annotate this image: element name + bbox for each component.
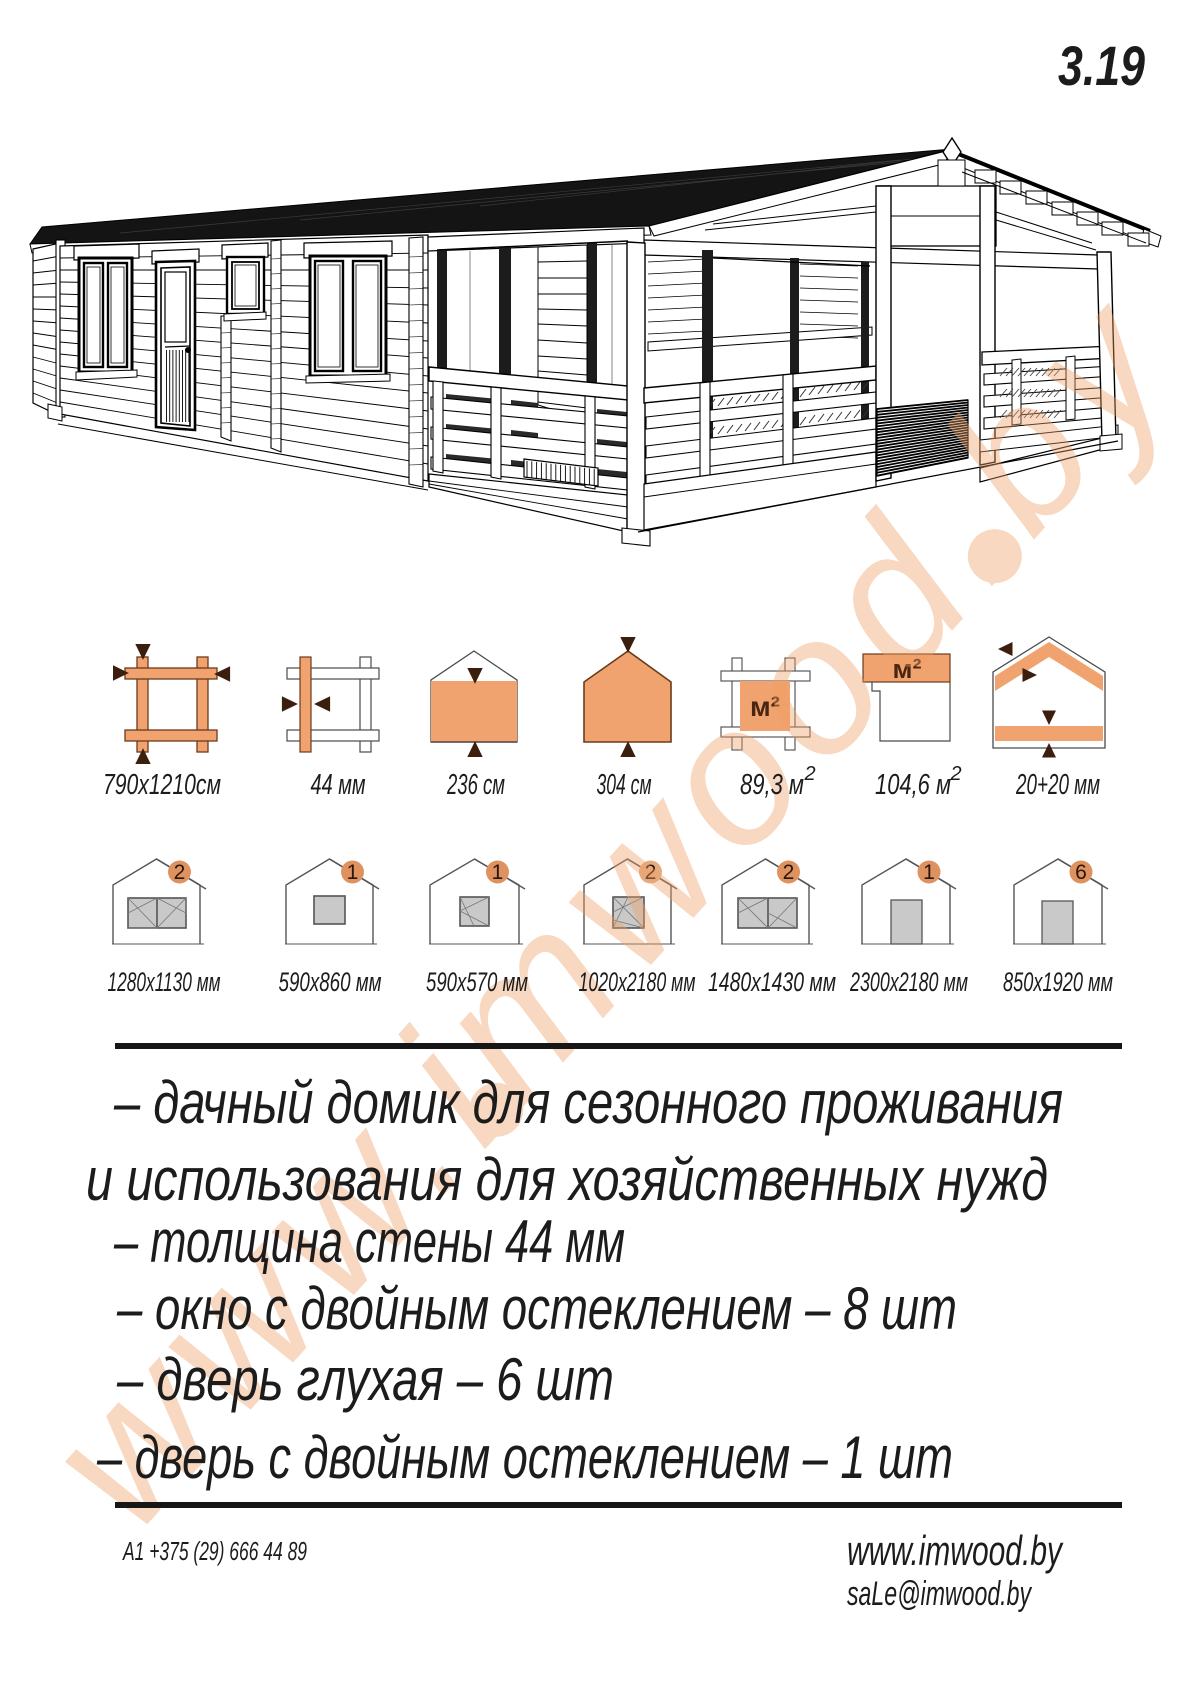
svg-text:2300х2180 мм: 2300х2180 мм (849, 967, 968, 997)
svg-text:790х1210см: 790х1210см (103, 769, 221, 801)
svg-text:20+20 мм: 20+20 мм (1015, 769, 1100, 801)
svg-text:590х570 мм: 590х570 мм (426, 967, 528, 997)
svg-text:и использования для хозяйствен: и использования для хозяйственных нужд (86, 1146, 1048, 1213)
svg-text:– дачный домик для сезонного п: – дачный домик для сезонного проживания (113, 1069, 1063, 1136)
svg-text:590х860 мм: 590х860 мм (279, 967, 382, 997)
svg-text:saLe@imwood.by: saLe@imwood.by (847, 1575, 1032, 1613)
svg-text:104,6 м: 104,6 м (875, 769, 951, 801)
svg-text:6: 6 (1075, 861, 1087, 884)
svg-text:www.imwood.by: www.imwood.by (847, 1527, 1064, 1574)
svg-text:850х1920 мм: 850х1920 мм (1003, 967, 1113, 997)
svg-text:– окно с двойным остеклением –: – окно с двойным остеклением – 8 шт (116, 1275, 957, 1342)
svg-text:2: 2 (174, 861, 186, 884)
svg-text:89,3 м: 89,3 м (740, 769, 804, 801)
svg-text:1280х1130 мм: 1280х1130 мм (108, 967, 221, 997)
svg-text:– толщина стены 44 мм: – толщина стены 44 мм (113, 1208, 625, 1275)
svg-text:– дверь с двойным остеклением: – дверь с двойным остеклением – 1 шт (96, 1424, 953, 1491)
svg-text:1020х2180 мм: 1020х2180 мм (579, 967, 696, 997)
svg-text:304 см: 304 см (597, 769, 652, 801)
svg-text:3.19: 3.19 (1058, 34, 1145, 97)
svg-text:1480х1430 мм: 1480х1430 мм (708, 967, 836, 997)
svg-text:– дверь глухая – 6 шт: – дверь глухая – 6 шт (116, 1346, 614, 1413)
svg-text:44 мм: 44 мм (311, 769, 366, 801)
svg-text:2: 2 (803, 763, 815, 785)
svg-text:2: 2 (949, 763, 961, 785)
svg-text:236 см: 236 см (446, 769, 505, 801)
svg-text:1: 1 (923, 861, 935, 884)
svg-text:А1 +375 (29) 666 44 89: А1 +375 (29) 666 44 89 (122, 1536, 307, 1566)
svg-text:1: 1 (347, 861, 359, 884)
